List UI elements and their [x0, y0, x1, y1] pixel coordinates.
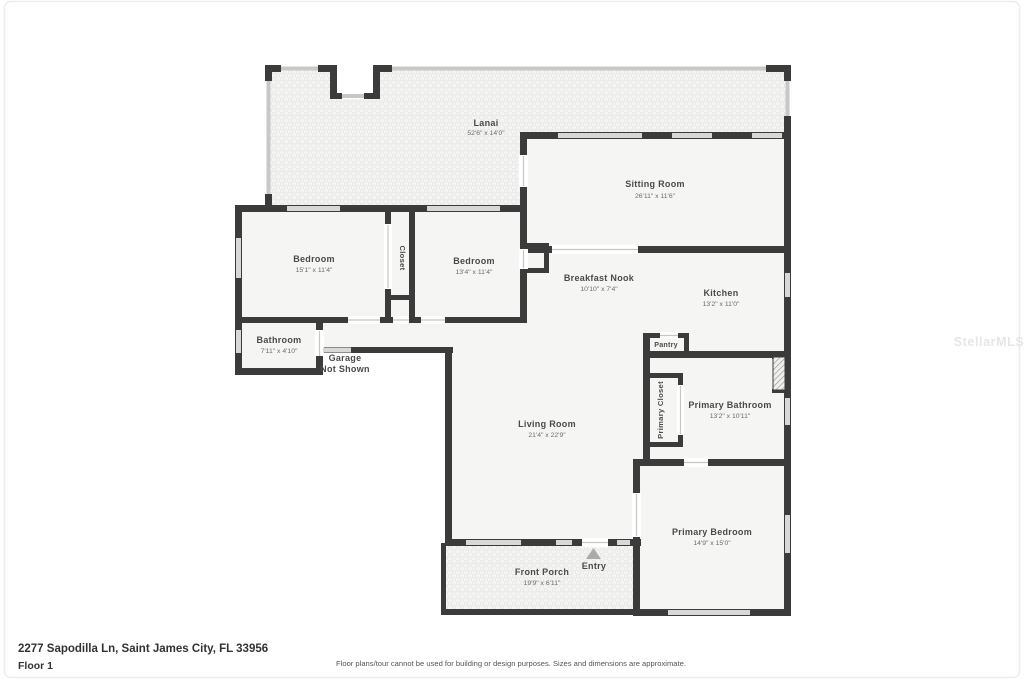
closet-label: Closet [398, 245, 407, 270]
sitting-room-label: Sitting Room [625, 179, 685, 189]
bedroom-mid-label: Bedroom [453, 256, 495, 266]
living-room-label: Living Room [518, 419, 576, 429]
breakfast-nook-dims: 10'10" x 7'4" [580, 286, 618, 293]
bedroom-mid-dims: 13'4" x 11'4" [456, 269, 493, 276]
front-porch-dims: 19'9" x 6'11" [524, 580, 561, 587]
primary-bedroom-dims: 14'9" x 15'0" [693, 540, 731, 547]
garage-label-line2: Not Shown [320, 364, 370, 374]
primary-bathroom-label: Primary Bathroom [688, 400, 771, 410]
shower-glass [773, 357, 785, 390]
kitchen-label: Kitchen [703, 288, 738, 298]
sitting-room-dims: 26'11" x 11'6" [635, 193, 676, 200]
entry-label: Entry [582, 561, 607, 571]
floor-label: Floor 1 [18, 660, 53, 672]
primary-bedroom-label: Primary Bedroom [672, 527, 752, 537]
bedroom-left-label: Bedroom [293, 254, 335, 264]
lanai-dims: 52'6" x 14'0" [467, 130, 505, 137]
floor-plan-canvas: Lanai Sitting Room Bedroom Closet Bedroo… [0, 0, 1024, 682]
stellar-mls-watermark: StellarMLS [954, 335, 1024, 349]
primary-bathroom-dims: 13'2" x 10'11" [710, 413, 751, 420]
bedroom-left-dims: 15'1" x 11'4" [296, 267, 333, 274]
breakfast-nook-label: Breakfast Nook [564, 273, 635, 283]
garage-label-line1: Garage [329, 353, 362, 363]
kitchen-dims: 13'2" x 11'0" [703, 301, 740, 308]
property-address: 2277 Sapodilla Ln, Saint James City, FL … [18, 643, 268, 655]
bathroom-dims: 7'11" x 4'10" [261, 348, 298, 355]
disclaimer-text: Floor plans/tour cannot be used for buil… [336, 659, 686, 668]
front-porch-label: Front Porch [515, 567, 569, 577]
floor-plan-page: Lanai Sitting Room Bedroom Closet Bedroo… [0, 0, 1024, 682]
primary-closet-label: Primary Closet [656, 381, 665, 439]
pantry-label: Pantry [654, 340, 678, 349]
bathroom-label: Bathroom [257, 335, 302, 345]
living-room-dims: 21'4" x 22'9" [528, 432, 566, 439]
lanai-label: Lanai [473, 118, 498, 128]
